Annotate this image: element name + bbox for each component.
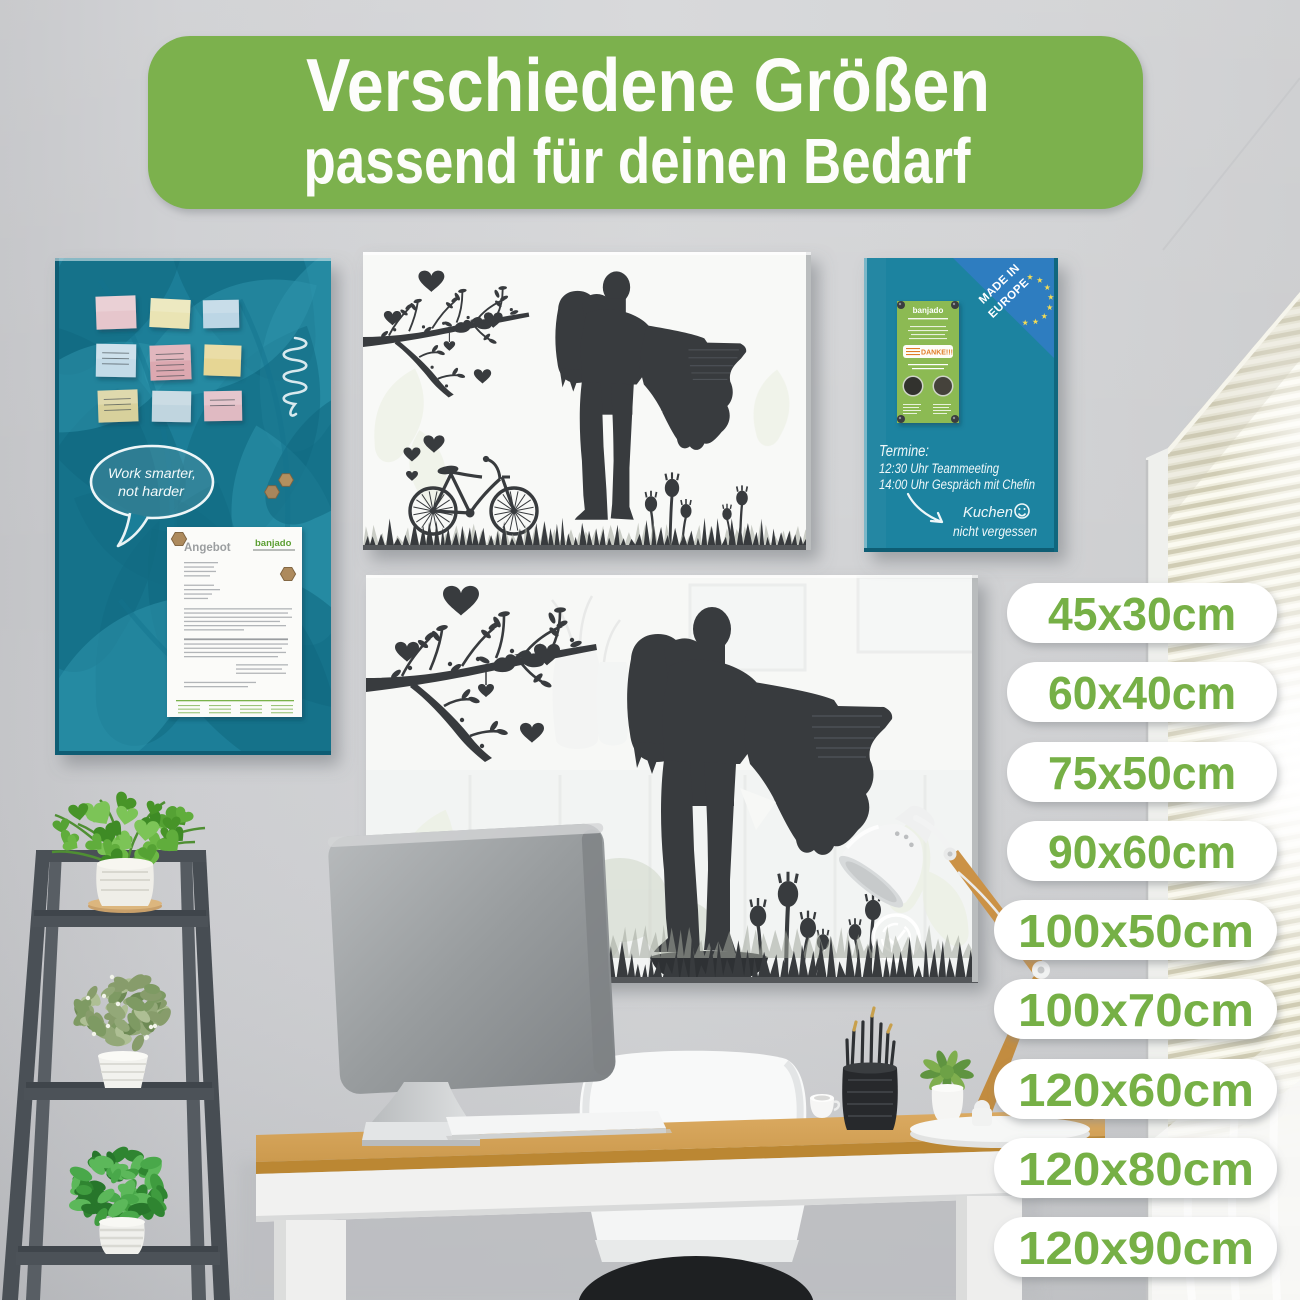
svg-text:12:30 Uhr Teammeeting: 12:30 Uhr Teammeeting <box>879 461 999 476</box>
svg-text:Termine:: Termine: <box>879 443 929 460</box>
svg-text:passend für deinen Bedarf: passend für deinen Bedarf <box>304 125 972 197</box>
svg-text:45x30cm: 45x30cm <box>1048 588 1236 640</box>
svg-text:100x50cm: 100x50cm <box>1018 905 1254 957</box>
svg-text:14:00 Uhr Gespräch mit Chefin: 14:00 Uhr Gespräch mit Chefin <box>879 477 1035 492</box>
svg-text:100x70cm: 100x70cm <box>1018 984 1254 1036</box>
svg-text:nicht vergessen: nicht vergessen <box>953 524 1037 539</box>
svg-text:banjado: banjado <box>255 538 292 549</box>
svg-text:60x40cm: 60x40cm <box>1048 667 1236 719</box>
svg-text:120x80cm: 120x80cm <box>1018 1143 1254 1195</box>
svg-text:Angebot: Angebot <box>184 542 231 554</box>
svg-text:120x90cm: 120x90cm <box>1018 1222 1254 1274</box>
svg-text:120x60cm: 120x60cm <box>1018 1064 1254 1116</box>
svg-text:Verschiedene Größen: Verschiedene Größen <box>306 43 990 127</box>
svg-text:75x50cm: 75x50cm <box>1048 747 1236 799</box>
svg-text:not harder: not harder <box>118 484 185 499</box>
svg-text:Work smarter,: Work smarter, <box>108 466 196 481</box>
svg-text:Kuchen: Kuchen <box>963 505 1013 521</box>
svg-text:banjado: banjado <box>913 306 944 315</box>
svg-text:DANKE!!!: DANKE!!! <box>921 350 953 357</box>
svg-text:90x60cm: 90x60cm <box>1048 826 1236 878</box>
